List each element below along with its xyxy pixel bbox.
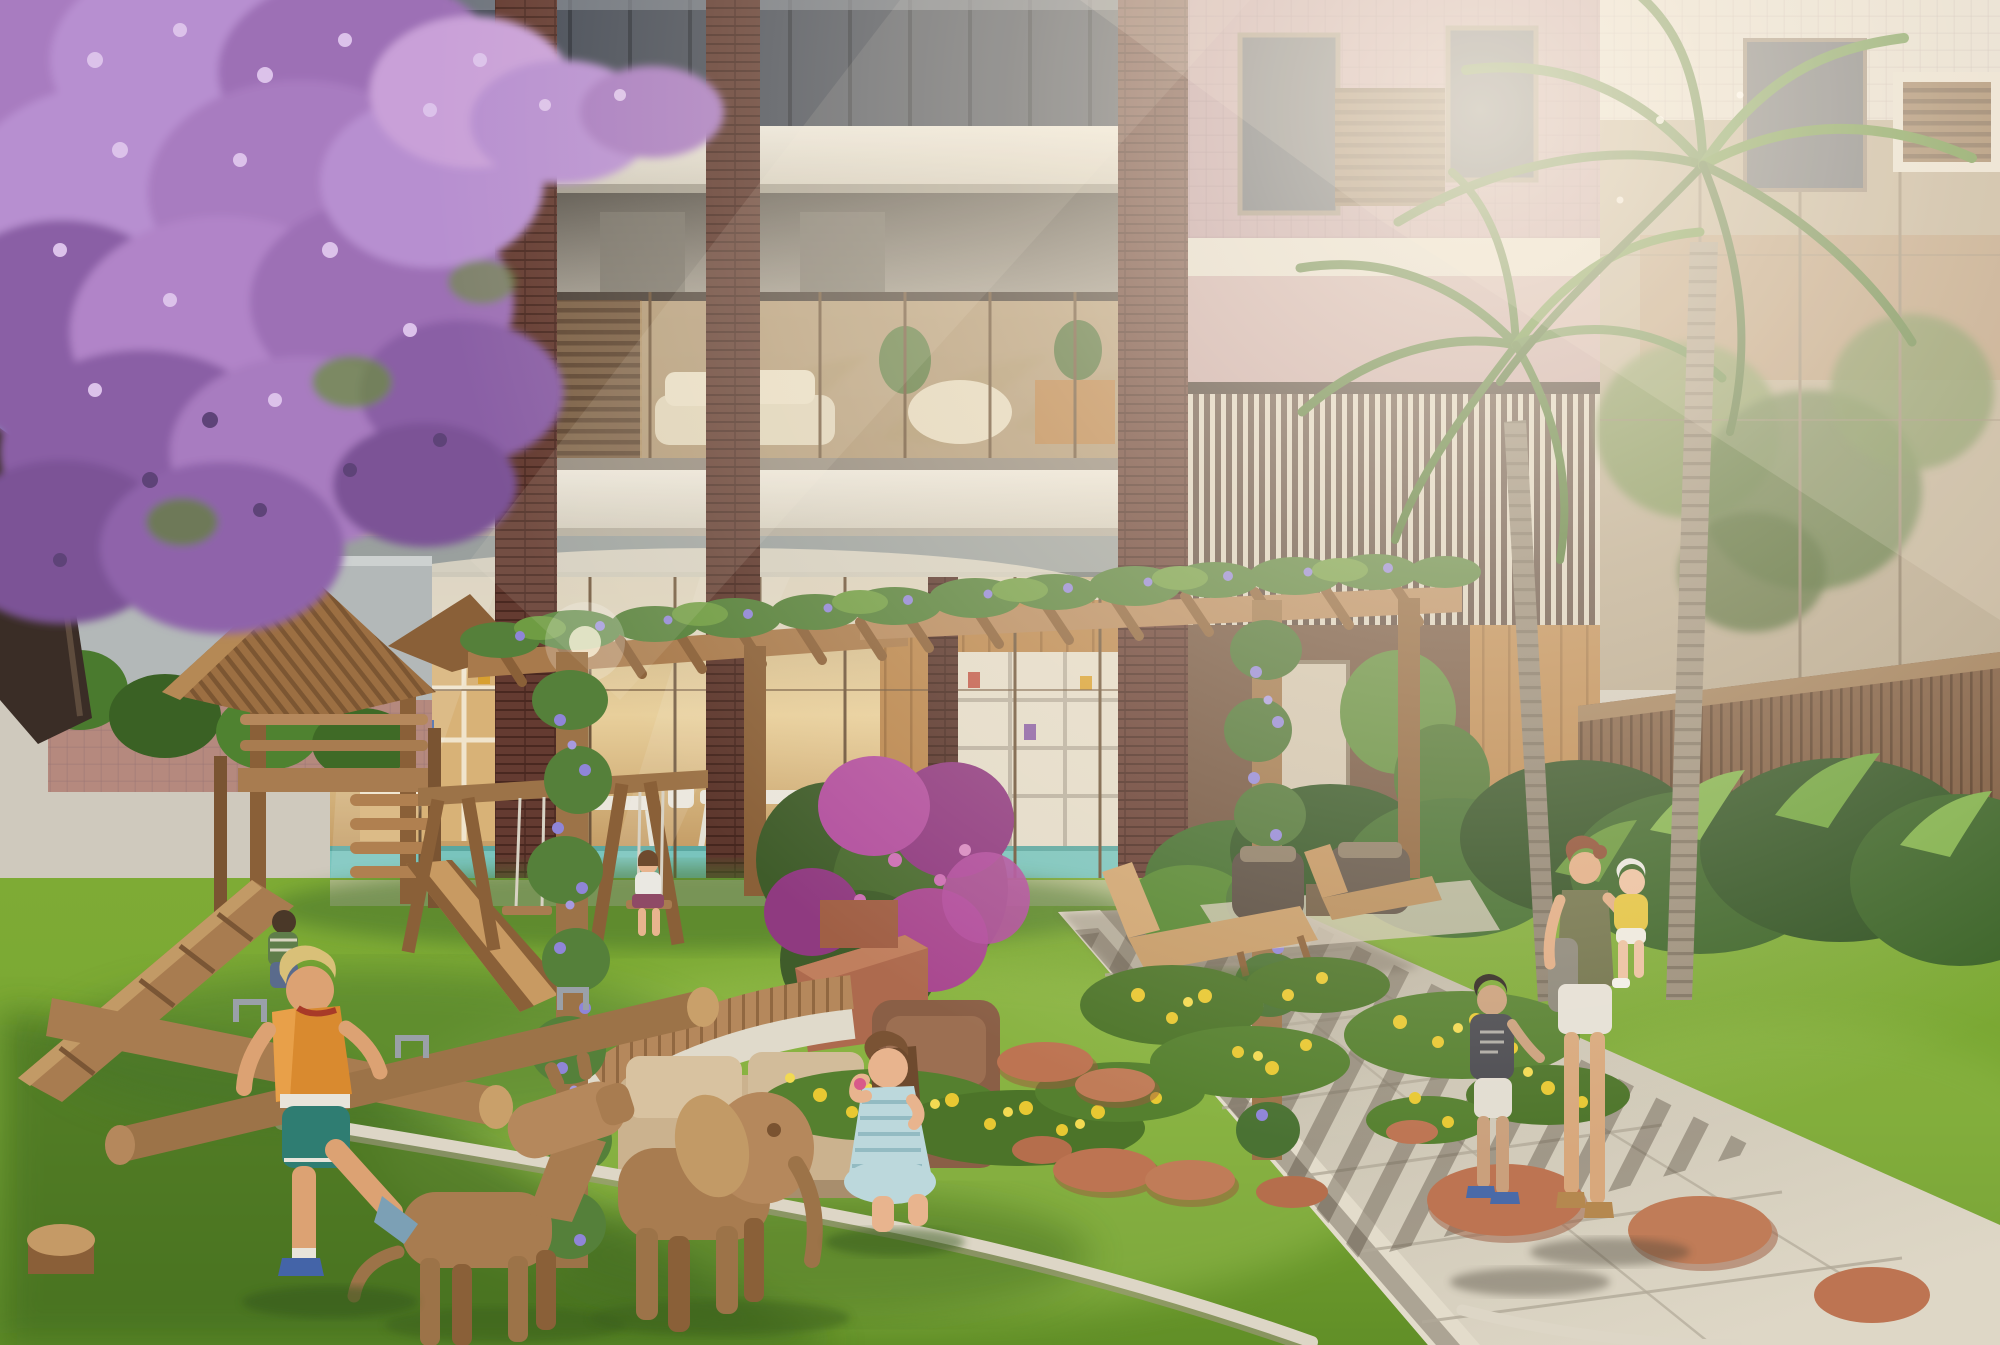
scene-canvas <box>0 0 2000 1345</box>
log-stool <box>27 1224 95 1274</box>
courtyard-rendering <box>0 0 2000 1345</box>
